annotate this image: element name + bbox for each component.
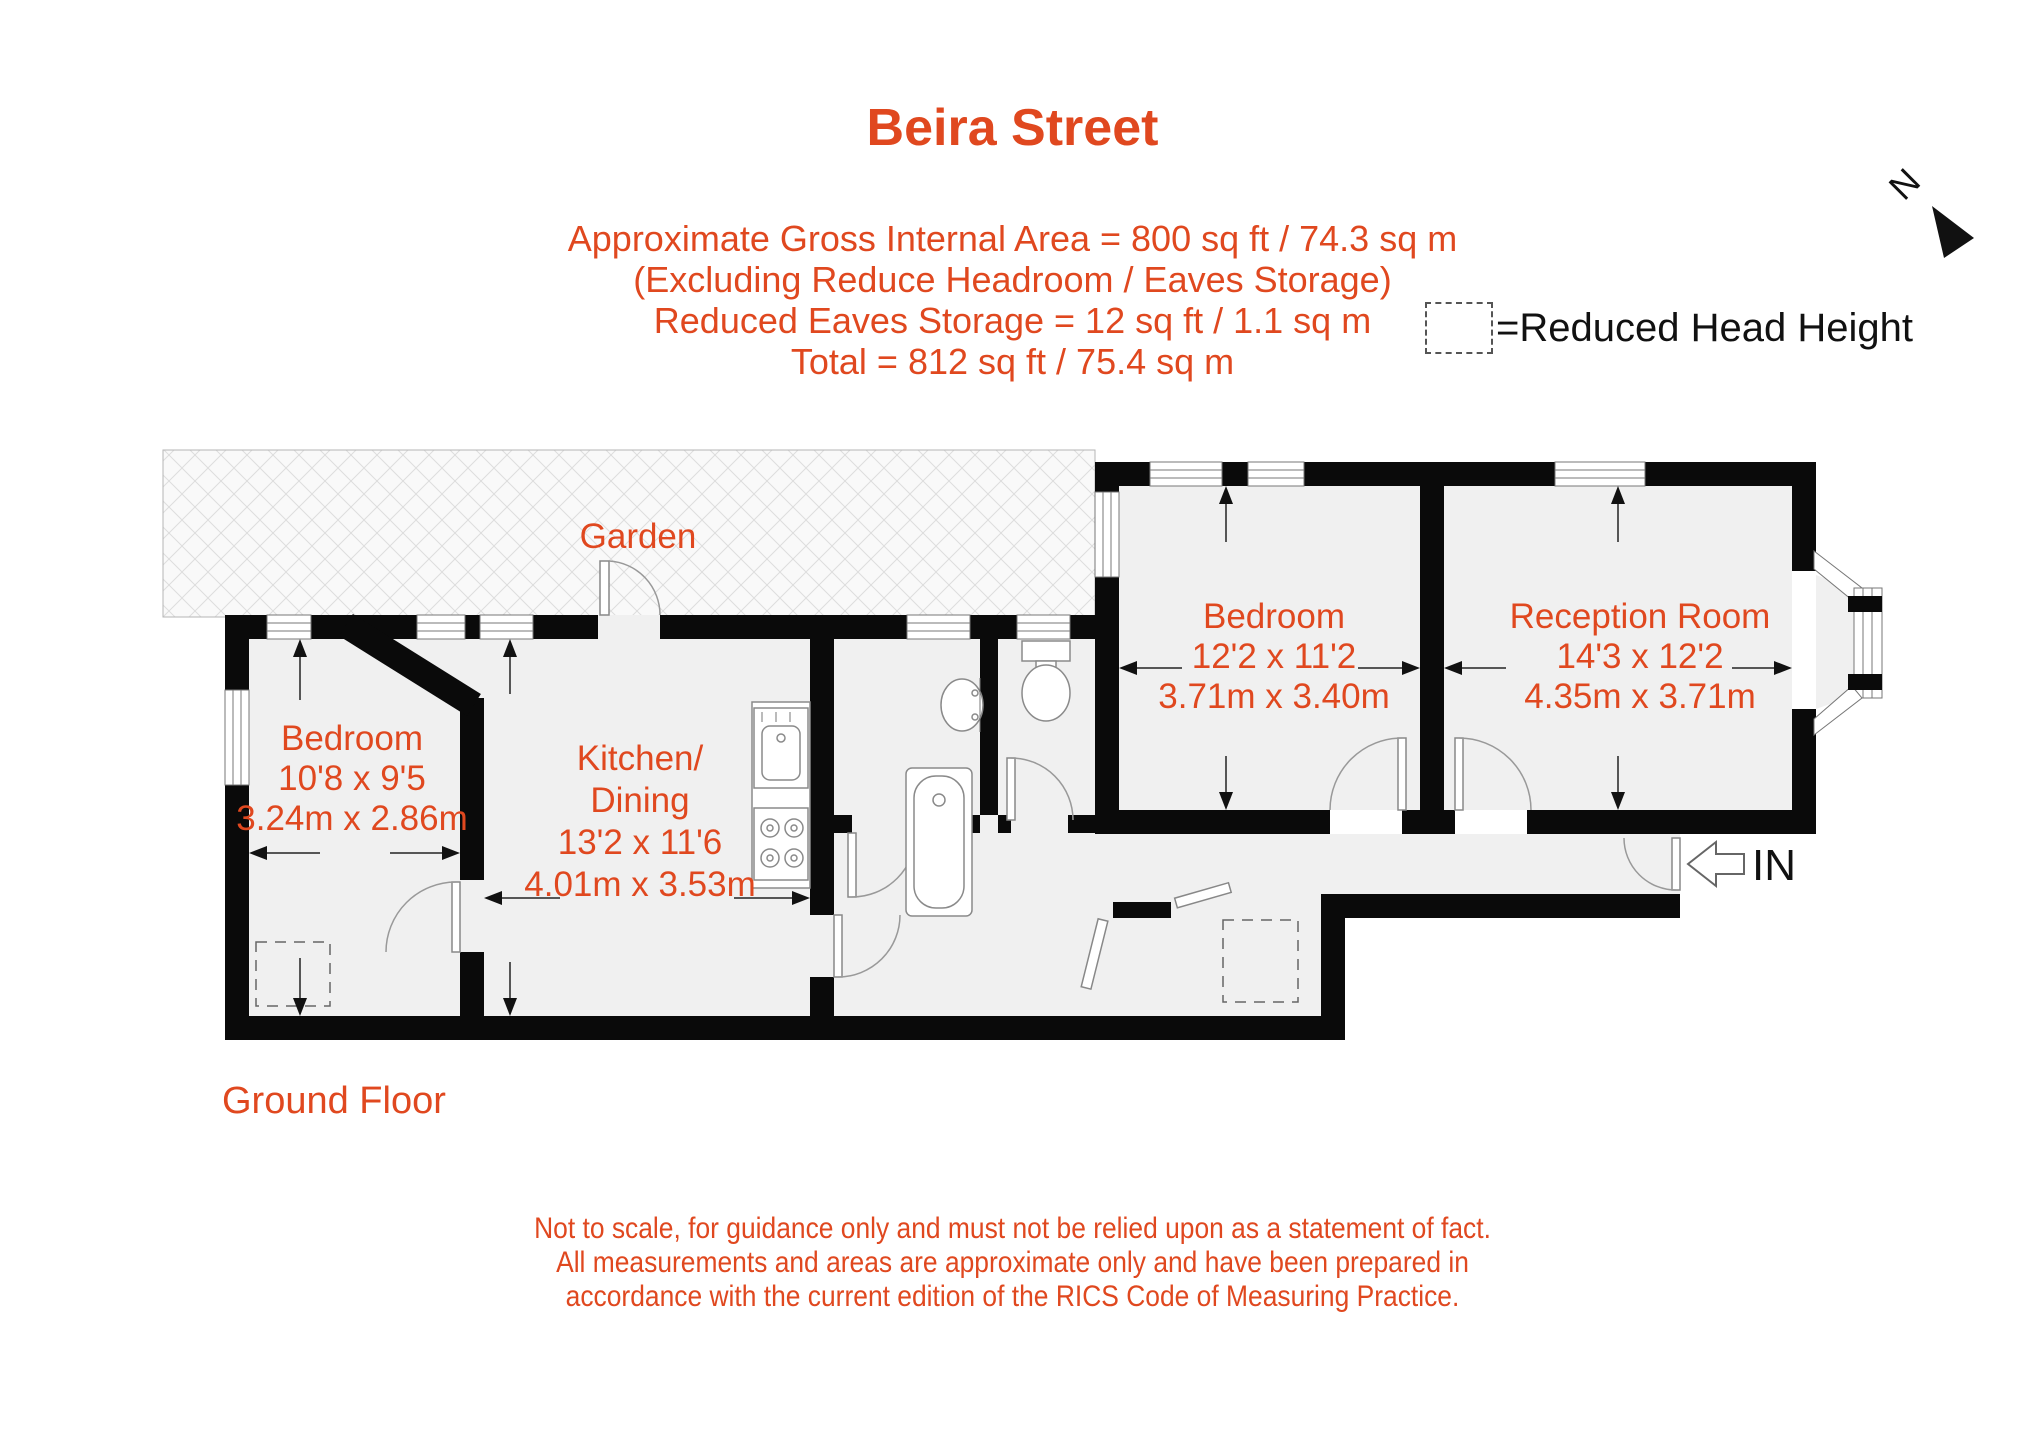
kitchen-sink (754, 708, 808, 788)
garden-label: Garden (580, 517, 697, 556)
toilet (1022, 641, 1070, 721)
north-label: N (1881, 160, 1928, 207)
window (1248, 462, 1304, 486)
window (1095, 492, 1119, 577)
reception-dims-ft: 14'3 x 12'2 (1556, 637, 1723, 676)
bathtub (906, 768, 972, 916)
window (907, 615, 970, 639)
window (417, 615, 465, 639)
floor-name-label: Ground Floor (222, 1080, 446, 1123)
kitchen-hob (754, 808, 808, 880)
kitchen-dims-ft: 13'2 x 11'6 (558, 823, 723, 862)
bedroom-right-name: Bedroom (1203, 597, 1345, 636)
window (1555, 462, 1645, 486)
floorplan-page: Beira Street Approximate Gross Internal … (0, 0, 2025, 1432)
bedroom-left-name: Bedroom (281, 719, 423, 758)
north-arrow-icon (1932, 206, 1974, 258)
reception-name: Reception Room (1510, 597, 1771, 636)
disclaimer-line: All measurements and areas are approxima… (122, 1246, 1904, 1280)
disclaimer-line: Not to scale, for guidance only and must… (122, 1212, 1904, 1246)
window (480, 615, 533, 639)
kitchen-name-line2: Dining (590, 781, 689, 820)
disclaimer-line: accordance with the current edition of t… (122, 1280, 1904, 1314)
bedroom-left-dims-m: 3.24m x 2.86m (236, 799, 468, 838)
window (1017, 615, 1070, 639)
bedroom-right-dims-m: 3.71m x 3.40m (1158, 677, 1390, 716)
entrance-label: IN (1752, 841, 1796, 890)
window (267, 615, 311, 639)
bedroom-left-dims-ft: 10'8 x 9'5 (278, 759, 426, 798)
bedroom-right-dims-ft: 12'2 x 11'2 (1192, 637, 1357, 676)
north-compass: N (1881, 160, 1974, 258)
reception-dims-m: 4.35m x 3.71m (1524, 677, 1756, 716)
kitchen-dims-m: 4.01m x 3.53m (524, 865, 756, 904)
entry-arrow-icon (1688, 842, 1744, 886)
window (1150, 462, 1222, 486)
basin (941, 678, 983, 732)
disclaimer: Not to scale, for guidance only and must… (122, 1212, 1904, 1314)
kitchen-name-line1: Kitchen/ (577, 739, 704, 778)
window (225, 690, 249, 785)
